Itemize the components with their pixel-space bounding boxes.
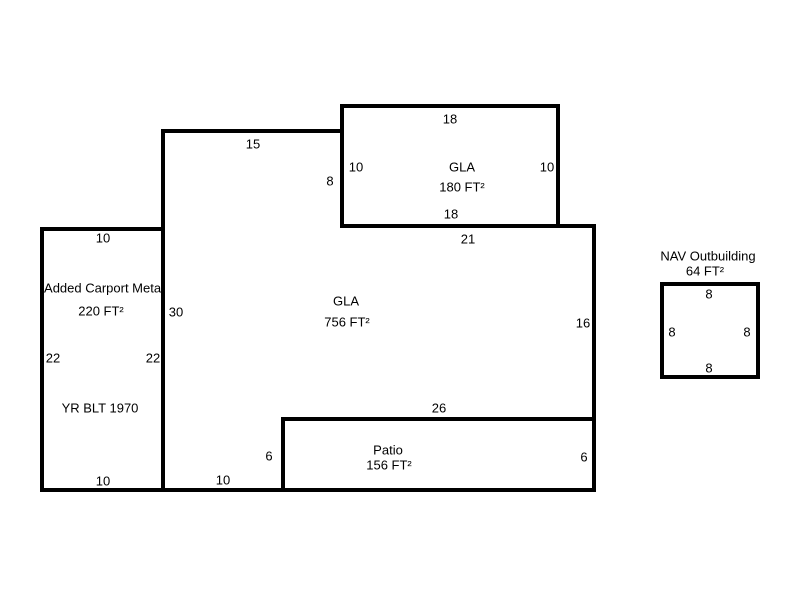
outbuilding-dim-right: 8 — [743, 325, 750, 340]
gla-main-dim-step-left: 8 — [326, 174, 333, 189]
carport-dim-top: 10 — [96, 231, 110, 246]
patio-dim-right: 6 — [580, 450, 587, 465]
gla-main-dim-left: 30 — [169, 305, 183, 320]
gla-main-dim-right: 16 — [576, 316, 590, 331]
gla-main-label: GLA — [333, 294, 359, 309]
gla-main-dim-bottom: 10 — [216, 473, 230, 488]
gla-addition-dim-top: 18 — [443, 112, 457, 127]
gla-addition-dim-bottom: 18 — [444, 207, 458, 222]
gla-main-dim-top: 15 — [246, 137, 260, 152]
carport-dim-bottom: 10 — [96, 474, 110, 489]
gla-addition-label: GLA — [449, 160, 475, 175]
gla-addition-dim-right: 10 — [540, 160, 554, 175]
gla-main-dim-notch-left: 6 — [265, 449, 272, 464]
patio-label: Patio — [373, 443, 403, 458]
carport-dim-left: 22 — [46, 351, 60, 366]
gla-main-dim-lower: 26 — [432, 401, 446, 416]
gla-main-outline — [163, 131, 594, 490]
gla-main-dim-upper-right: 21 — [461, 232, 475, 247]
sketch-walls — [0, 0, 800, 600]
outbuilding-dim-left: 8 — [668, 325, 675, 340]
carport-year-built: YR BLT 1970 — [62, 401, 139, 416]
outbuilding-dim-top: 8 — [705, 287, 712, 302]
outbuilding-area: 64 FT² — [686, 264, 724, 279]
floorplan-sketch: 18 10 GLA 10 180 FT² 18 15 8 21 GLA 756 … — [0, 0, 800, 600]
carport-dim-right: 22 — [146, 351, 160, 366]
patio-area: 156 FT² — [366, 458, 412, 473]
gla-addition-area: 180 FT² — [439, 180, 485, 195]
gla-addition-dim-left: 10 — [349, 160, 363, 175]
gla-main-area: 756 FT² — [324, 315, 370, 330]
patio-outline — [283, 419, 594, 490]
outbuilding-label: NAV Outbuilding — [660, 249, 755, 264]
outbuilding-dim-bottom: 8 — [705, 361, 712, 376]
carport-area: 220 FT² — [78, 304, 124, 319]
carport-label: Added Carport Metal — [44, 281, 164, 296]
